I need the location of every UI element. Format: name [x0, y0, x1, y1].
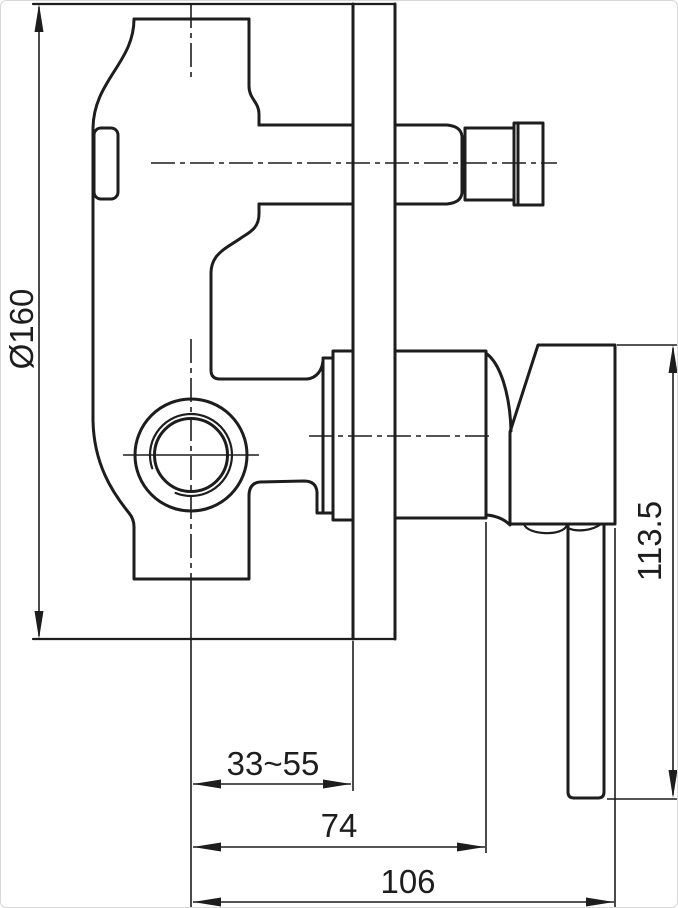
arrow-down-1135	[669, 770, 678, 798]
cartridge-boss	[317, 351, 353, 520]
arrow-right-3355	[323, 780, 351, 789]
label-handle-height: 113.5	[631, 501, 668, 581]
trim-sleeve	[395, 351, 511, 525]
handle-head	[510, 345, 615, 524]
arrow-up-160	[35, 4, 44, 32]
dimension-trim-depth: 74	[193, 807, 485, 852]
body-outline-left	[93, 19, 317, 579]
plate-faces	[353, 4, 395, 639]
handle-lever	[568, 525, 604, 798]
handle-assembly	[395, 345, 615, 798]
label-overall-depth: 106	[380, 863, 435, 900]
shower-mixer-drawing: Ø160 113.5 33~55 74 106	[1, 1, 678, 908]
dimension-handle-height: 113.5	[631, 345, 678, 798]
label-trim-depth: 74	[321, 807, 358, 844]
arrow-up-1135	[669, 345, 678, 373]
outlet-port	[123, 399, 259, 511]
body-outline-right-upper	[249, 19, 259, 125]
spout-tube	[259, 125, 353, 204]
dimension-adjustable-depth: 33~55	[193, 745, 351, 789]
fitting-thread-section	[465, 128, 514, 200]
arrow-down-160	[35, 611, 44, 639]
valve-body	[93, 19, 353, 579]
arrow-right-106	[586, 898, 614, 907]
mounting-plate	[33, 4, 395, 639]
technical-drawing-page: Ø160 113.5 33~55 74 106	[0, 0, 678, 908]
dimension-overall-depth: 106	[193, 863, 614, 907]
arrow-left-106	[193, 898, 221, 907]
fitting-tube	[395, 125, 462, 204]
label-plate-diameter: Ø160	[3, 289, 40, 370]
dimension-plate-diameter: Ø160	[3, 4, 44, 639]
outlet-fitting	[395, 123, 543, 205]
label-adjustable-depth: 33~55	[227, 745, 320, 782]
arrow-left-74	[193, 843, 221, 852]
body-outline-right-mid	[211, 204, 323, 379]
arrow-right-74	[457, 843, 485, 852]
body-side-boss	[94, 128, 118, 199]
fitting-end-cap	[514, 123, 543, 205]
arrow-left-3355	[193, 780, 221, 789]
